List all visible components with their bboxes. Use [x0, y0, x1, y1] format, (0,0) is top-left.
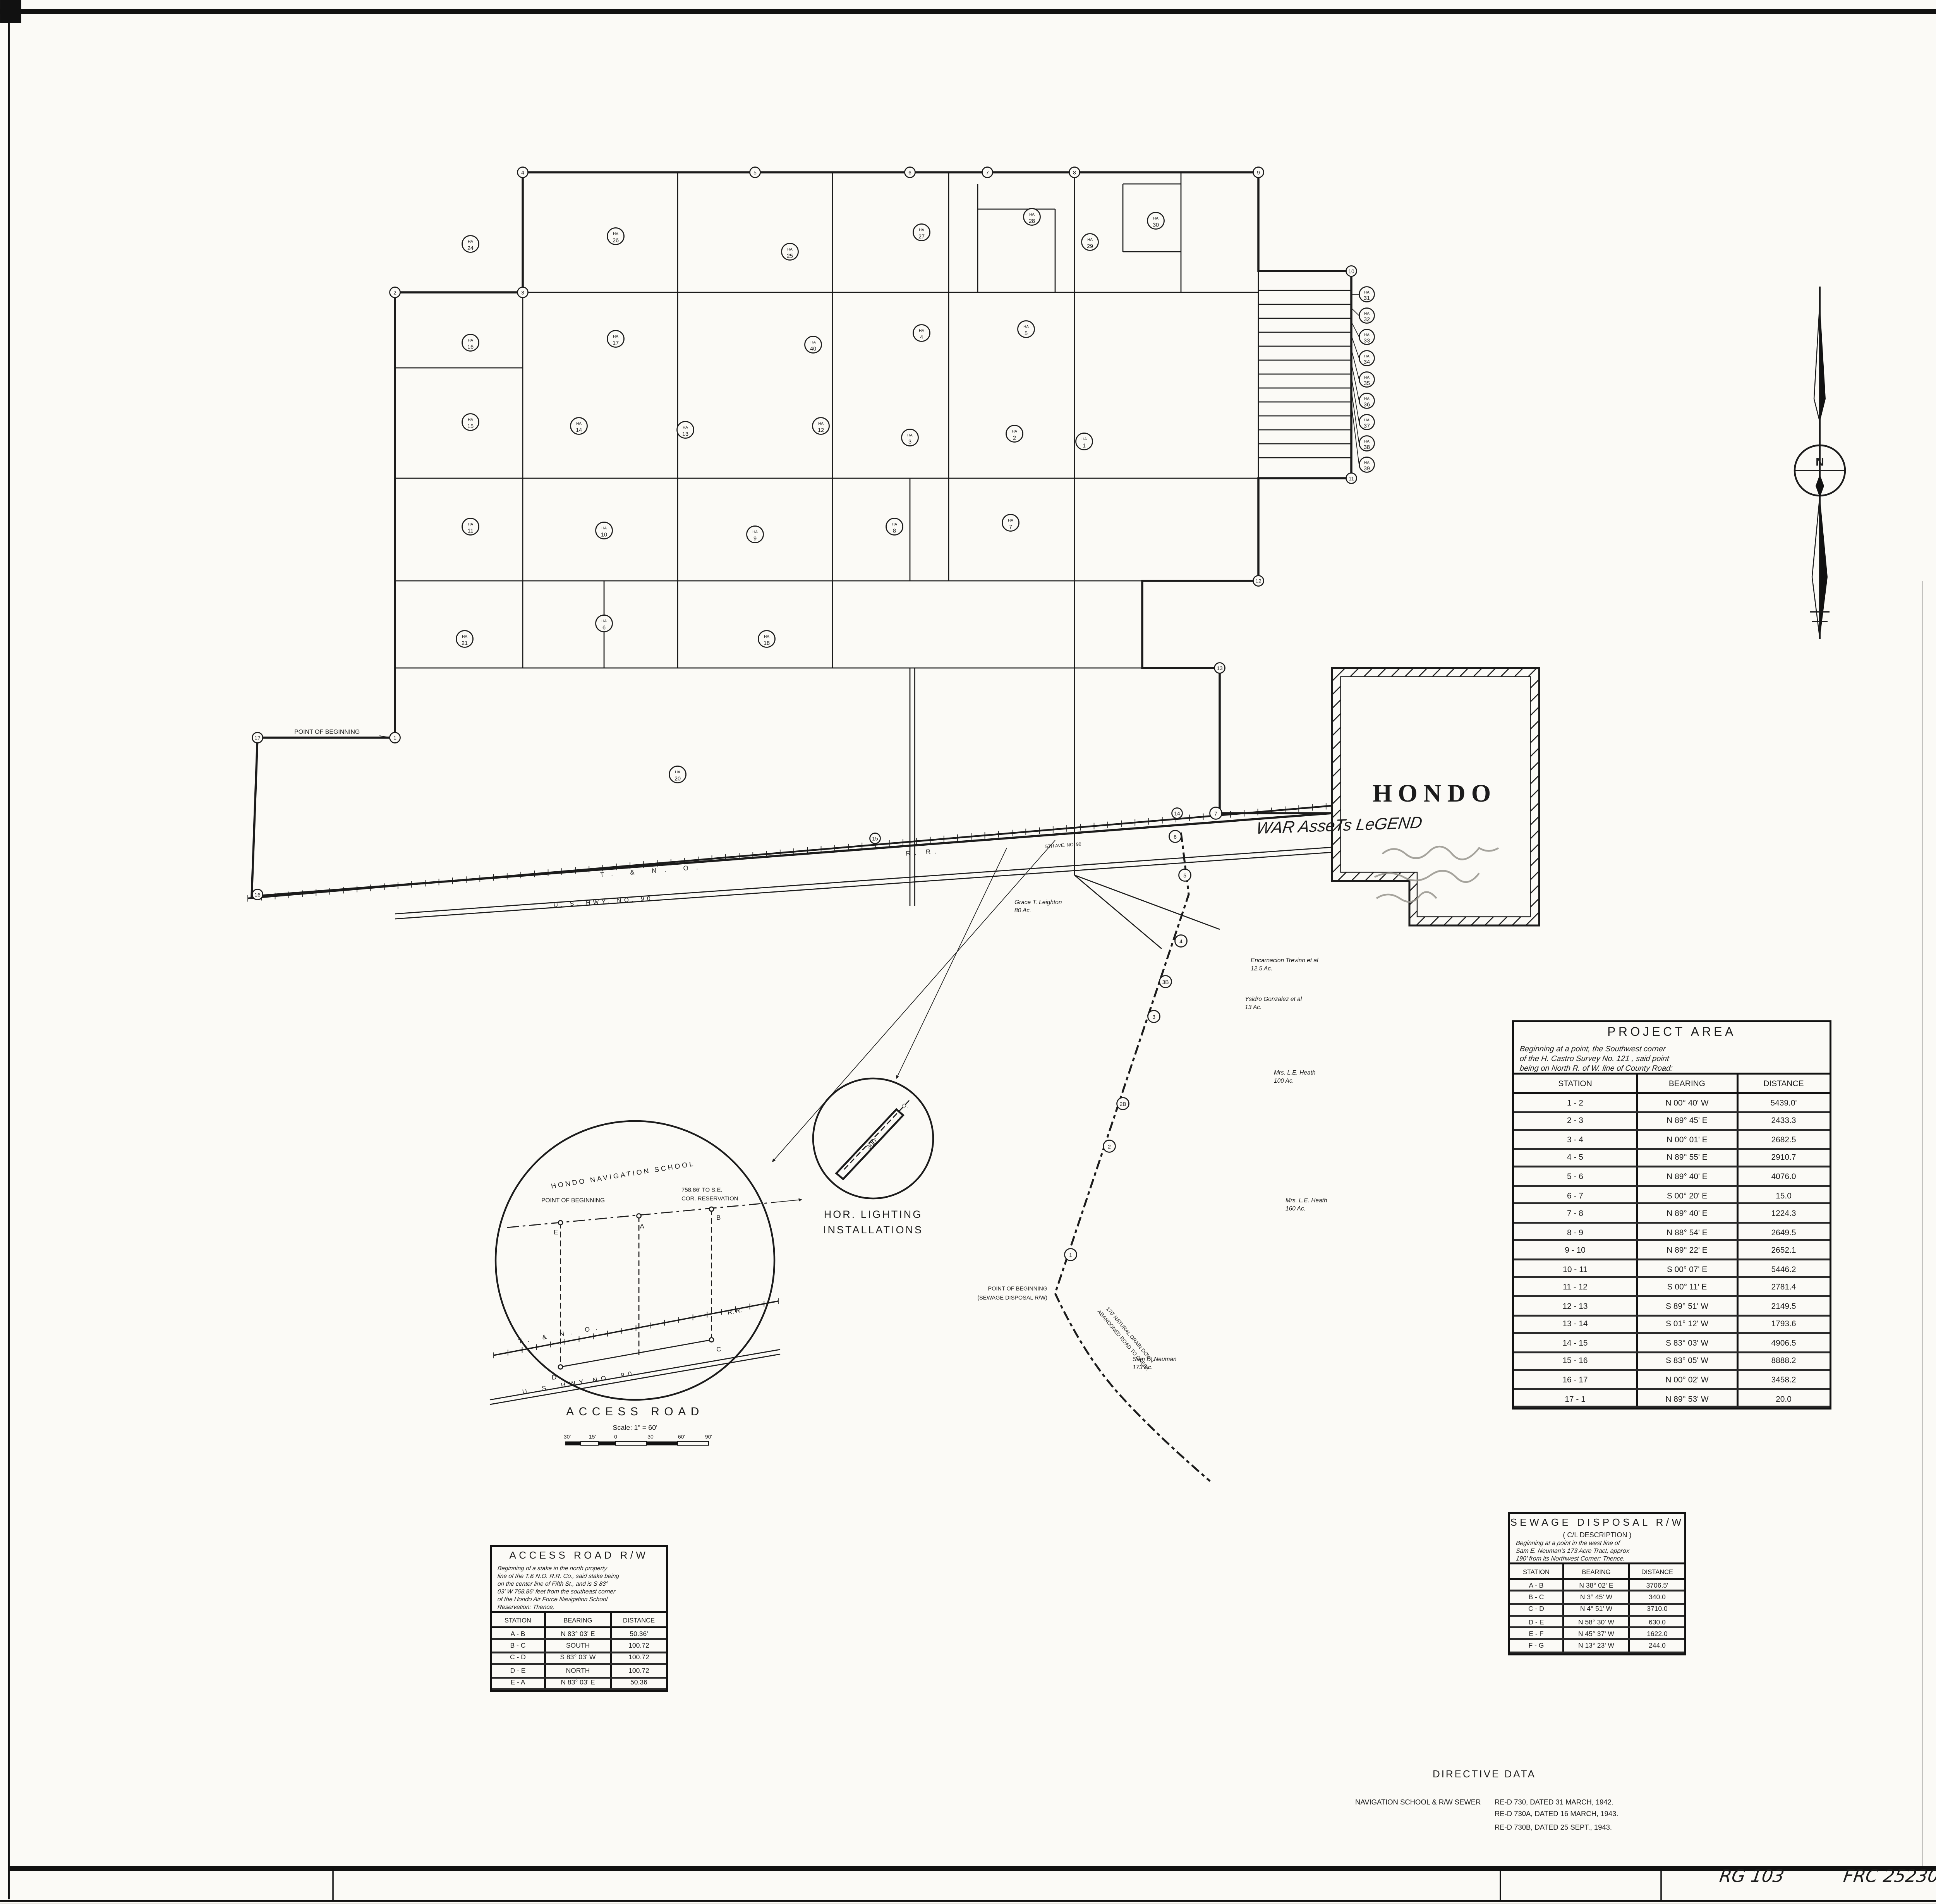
svg-text:HA: HA: [675, 770, 680, 774]
svg-text:3: 3: [908, 439, 911, 445]
bearing-row: 9 - 10 N 89° 22' E 2652.1: [1514, 1242, 1830, 1260]
svg-text:HA: HA: [1364, 376, 1370, 380]
svg-text:2B: 2B: [1119, 1101, 1126, 1107]
svg-text:HA: HA: [683, 426, 688, 430]
svg-text:28: 28: [1029, 218, 1035, 224]
svg-text:HA: HA: [892, 522, 897, 527]
hondo-city-label: HONDO: [1373, 779, 1497, 807]
svg-text:15: 15: [467, 423, 474, 429]
svg-text:2: 2: [1108, 1143, 1111, 1150]
svg-text:HA: HA: [1029, 213, 1035, 217]
svg-text:9: 9: [753, 536, 757, 542]
directive-project: NAVIGATION SCHOOL & R/W SEWER: [1355, 1800, 1481, 1807]
svg-text:27: 27: [918, 233, 925, 240]
svg-text:6: 6: [908, 169, 911, 175]
svg-text:HA: HA: [1364, 312, 1370, 316]
svg-text:HA: HA: [1153, 216, 1159, 221]
svg-text:18: 18: [764, 640, 770, 646]
footer-frc: FRC 252307: [1842, 1870, 1936, 1889]
svg-text:HA: HA: [1364, 461, 1370, 465]
svg-text:HA: HA: [613, 335, 618, 339]
svg-text:ACCESS ROAD: ACCESS ROAD: [566, 1405, 704, 1418]
svg-text:HA: HA: [764, 635, 769, 639]
svg-text:15: 15: [872, 835, 878, 841]
sewage-cl-row: D - E N 58° 30' W 630.0: [1510, 1616, 1684, 1628]
svg-text:INSTALLATIONS: INSTALLATIONS: [823, 1224, 923, 1236]
svg-text:17: 17: [254, 735, 261, 741]
sewage-cl-row: E - F N 45° 37' W 1622.0: [1510, 1629, 1684, 1641]
bearing-row: 11 - 12 S 00° 11' E 2781.4: [1514, 1279, 1830, 1297]
svg-text:HA: HA: [1364, 354, 1370, 359]
bearing-row: 15 - 16 S 83° 05' W 8888.2: [1514, 1353, 1830, 1371]
svg-text:1: 1: [393, 735, 396, 741]
svg-text:5: 5: [1025, 330, 1028, 337]
access-road-table: ACCESS ROAD R/W Beginning of a stake in …: [490, 1545, 668, 1692]
bearing-row: 5 - 6 N 89° 40' E 4076.0: [1514, 1168, 1830, 1186]
svg-text:HA: HA: [919, 329, 924, 333]
svg-text:8: 8: [1073, 169, 1076, 175]
svg-text:HA: HA: [468, 338, 473, 343]
footer-rg: RG 103: [1718, 1870, 1785, 1889]
svg-text:13: 13: [1217, 665, 1223, 671]
svg-text:2: 2: [393, 289, 396, 295]
svg-text:3: 3: [521, 289, 524, 295]
svg-text:12: 12: [818, 427, 824, 433]
main-tract-map: HONDO POINT OF BEGINNING POINT OF BEGINN…: [248, 167, 1539, 1481]
svg-text:HA: HA: [468, 418, 473, 422]
svg-text:A: A: [640, 1222, 645, 1230]
svg-text:HA: HA: [1364, 333, 1370, 337]
sewage-cl-row: F - G N 13° 23' W 244.0: [1510, 1641, 1684, 1653]
svg-text:31: 31: [1364, 295, 1370, 301]
directive-item-1: RE-D 730A, DATED 16 MARCH, 1943.: [1495, 1813, 1618, 1820]
svg-text:3: 3: [1152, 1014, 1155, 1020]
bearing-row: 16 - 17 N 00° 02' W 3458.2: [1514, 1371, 1830, 1390]
svg-text:1: 1: [1083, 443, 1086, 449]
pob-left-label: POINT OF BEGINNING: [294, 729, 360, 735]
svg-text:30: 30: [647, 1434, 654, 1440]
bearing-row: 4 - 5 N 89° 55' E 2910.7: [1514, 1149, 1830, 1168]
owner-label: Mrs. L.E. Heath100 Ac.: [1274, 1070, 1316, 1084]
svg-text:HA: HA: [468, 240, 473, 244]
svg-text:90': 90': [705, 1434, 712, 1440]
svg-text:B: B: [716, 1214, 721, 1221]
svg-text:10: 10: [601, 532, 607, 538]
directive-title: DIRECTIVE DATA: [1433, 1772, 1536, 1782]
sewage-cl-row: B - C N 3° 45' W 340.0: [1510, 1592, 1684, 1604]
svg-text:O.: O.: [902, 1102, 908, 1109]
svg-text:HA: HA: [1364, 397, 1370, 401]
svg-text:HA: HA: [576, 422, 582, 426]
svg-text:10: 10: [1348, 268, 1354, 274]
svg-text:26: 26: [613, 237, 619, 244]
bearing-row: 3 - 4 N 00° 01' E 2682.5: [1514, 1131, 1830, 1149]
bearing-row: 7 - 8 N 89° 40' E 1224.3: [1514, 1205, 1830, 1223]
svg-text:HA: HA: [810, 340, 816, 345]
svg-text:14: 14: [576, 427, 582, 433]
bearing-row: 1 - 2 N 00° 40' W 5439.0': [1514, 1094, 1830, 1113]
owner-label: Encarnacion Trevino et al12.5 Ac.: [1251, 957, 1318, 972]
svg-text:16: 16: [254, 891, 261, 898]
svg-text:HA: HA: [468, 522, 473, 527]
svg-text:6: 6: [1174, 834, 1177, 840]
svg-text:HOR. LIGHTING: HOR. LIGHTING: [824, 1209, 922, 1220]
owner-labels: Encarnacion Trevino et al12.5 Ac.Ysidro …: [1014, 899, 1327, 1371]
svg-text:HA: HA: [1012, 429, 1017, 434]
bearing-row: 10 - 11 S 00° 07' E 5446.2: [1514, 1260, 1830, 1279]
access-cl-row: B - C SOUTH 100.72: [492, 1641, 666, 1653]
svg-text:7: 7: [1009, 524, 1012, 530]
svg-text:12: 12: [1255, 578, 1261, 584]
sewage-rw-line: [1055, 833, 1210, 1481]
svg-text:HA: HA: [919, 228, 924, 232]
svg-text:170' NATURAL DRAIN DOWN: 170' NATURAL DRAIN DOWN: [1105, 1306, 1155, 1363]
lighting-detail: 300' O. HOR. LIGHTING INSTALLATIONS: [813, 1078, 933, 1236]
svg-text:7: 7: [1214, 810, 1217, 817]
svg-text:E: E: [554, 1228, 558, 1236]
access-cl-row: D - E NORTH 100.72: [492, 1665, 666, 1678]
sewage-cl-table: SEWAGE DISPOSAL R/W ( C/L DESCRIPTION ) …: [1508, 1512, 1686, 1655]
svg-text:3B: 3B: [1162, 979, 1169, 985]
svg-text:HA: HA: [1087, 238, 1093, 242]
svg-text:15': 15': [589, 1434, 596, 1440]
compass-rose: N: [1795, 287, 1845, 639]
svg-text:HA: HA: [1364, 418, 1370, 422]
bearing-row: 13 - 14 S 01° 12' W 1793.6: [1514, 1316, 1830, 1334]
svg-text:14: 14: [1174, 810, 1180, 816]
svg-text:5: 5: [1183, 872, 1186, 879]
owner-label: Mrs. L.E. Heath160 Ac.: [1286, 1197, 1327, 1212]
svg-text:HA: HA: [1081, 437, 1087, 441]
svg-text:32: 32: [1364, 316, 1370, 323]
north-icon: N: [1816, 455, 1824, 468]
svg-text:HA: HA: [601, 526, 607, 531]
svg-text:36: 36: [1364, 402, 1370, 408]
sewage-cl-row: A - B N 38° 02' E 3706.5': [1510, 1580, 1684, 1592]
svg-text:13: 13: [682, 431, 688, 437]
svg-text:0: 0: [614, 1434, 617, 1440]
svg-text:2: 2: [1013, 435, 1016, 441]
project-area-bearing-table: PROJECT AREA Beginning at a point, the S…: [1512, 1020, 1831, 1410]
directive-item-0: RE-D 730, DATED 31 MARCH, 1942.: [1495, 1800, 1613, 1807]
svg-text:11: 11: [1349, 475, 1354, 481]
svg-text:Scale: 1" = 60': Scale: 1" = 60': [613, 1423, 657, 1431]
bearing-row: 17 - 1 N 89° 53' W 20.0: [1514, 1390, 1830, 1408]
svg-text:1: 1: [1069, 1252, 1072, 1258]
svg-text:4: 4: [521, 169, 524, 175]
access-road-detail: HONDO NAVIGATION SCHOOL POINT OF BEGINNI…: [490, 1121, 802, 1445]
svg-text:25: 25: [787, 253, 793, 259]
svg-text:HA: HA: [462, 635, 467, 639]
highway-label: U. S. HWY. NO. 90: [553, 895, 654, 909]
directive-item-2: RE-D 730B, DATED 25 SEPT., 1943.: [1495, 1826, 1612, 1833]
svg-text:39: 39: [1364, 465, 1370, 472]
svg-text:4: 4: [1179, 938, 1183, 944]
svg-text:HA: HA: [1008, 518, 1013, 523]
svg-text:HA: HA: [787, 247, 793, 252]
bearing-row: 8 - 9 N 88° 54' E 2649.5: [1514, 1223, 1830, 1242]
svg-text:33: 33: [1364, 338, 1370, 344]
svg-text:D: D: [552, 1373, 556, 1381]
svg-text:HA: HA: [1364, 440, 1370, 444]
strip-tract-markers: HA31HA32HA33HA34HA35HA36HA37HA38HA39: [1351, 287, 1374, 472]
svg-text:U. S. HWY NO. 90: U. S. HWY NO. 90: [522, 1370, 636, 1396]
svg-text:11: 11: [468, 528, 474, 534]
svg-text:17: 17: [613, 340, 619, 346]
svg-text:4: 4: [920, 334, 923, 340]
bearing-row: 6 - 7 S 00° 20' E 15.0: [1514, 1186, 1830, 1205]
svg-text:POINT OF BEGINNING: POINT OF BEGINNING: [541, 1197, 605, 1204]
svg-text:16: 16: [467, 344, 474, 350]
svg-text:HA: HA: [818, 422, 824, 426]
railroad-label-2: R. R.: [906, 847, 941, 857]
bearing-row: 12 - 13 S 89° 51' W 2149.5: [1514, 1297, 1830, 1316]
access-cl-row: A - B N 83° 03' E 50.36': [492, 1628, 666, 1641]
svg-text:C: C: [716, 1346, 721, 1353]
pob-sewage-label: POINT OF BEGINNING (SEWAGE DISPOSAL R/W): [977, 1286, 1047, 1301]
svg-text:HA: HA: [752, 530, 758, 534]
svg-text:5: 5: [753, 169, 757, 175]
bearing-row: 14 - 15 S 83° 03' W 4906.5: [1514, 1334, 1830, 1353]
sewage-cl-row: C - D N 4° 51' W 3710.0: [1510, 1604, 1684, 1616]
svg-text:40: 40: [810, 346, 816, 352]
access-cl-row: E - A N 83° 03' E 50.36: [492, 1678, 666, 1690]
drawing-sheet: HONDO POINT OF BEGINNING POINT OF BEGINN…: [0, 0, 1936, 1904]
svg-text:HA: HA: [1364, 290, 1370, 295]
access-cl-row: C - D S 83° 03' W 100.72: [492, 1653, 666, 1665]
svg-text:R. R.: R. R.: [727, 1307, 743, 1316]
svg-text:300': 300': [865, 1137, 880, 1151]
svg-text:34: 34: [1364, 359, 1370, 365]
svg-text:HA: HA: [613, 232, 618, 236]
svg-text:29: 29: [1087, 243, 1093, 249]
svg-text:7: 7: [986, 169, 989, 175]
svg-text:(SEWAGE DISPOSAL R/W): (SEWAGE DISPOSAL R/W): [977, 1295, 1047, 1301]
svg-text:30: 30: [1153, 222, 1159, 228]
svg-text:HA: HA: [601, 619, 607, 623]
tract-markers: HA24HA26HA25HA27HA28HA29HA30HA16HA17HA40…: [457, 208, 1164, 783]
svg-text:21: 21: [462, 640, 468, 646]
svg-text:38: 38: [1364, 444, 1370, 450]
svg-text:COR. RESERVATION: COR. RESERVATION: [681, 1195, 738, 1202]
svg-text:6: 6: [602, 625, 606, 631]
svg-text:HA: HA: [1023, 325, 1029, 329]
svg-text:9: 9: [1257, 169, 1260, 175]
access-scale-bar: 30'15' 030 60'90': [564, 1434, 712, 1446]
station-markers: 1234567891011121314151617: [252, 167, 1357, 900]
svg-text:20: 20: [675, 776, 681, 782]
svg-text:30': 30': [564, 1434, 571, 1440]
svg-text:37: 37: [1364, 423, 1370, 429]
svg-text:60': 60': [678, 1434, 685, 1440]
svg-text:35: 35: [1364, 380, 1370, 386]
svg-text:HONDO NAVIGATION SCHOOL: HONDO NAVIGATION SCHOOL: [551, 1160, 696, 1190]
svg-text:24: 24: [467, 245, 474, 251]
svg-text:POINT OF BEGINNING: POINT OF BEGINNING: [988, 1286, 1047, 1292]
detail-railroad-ticks: [494, 1298, 778, 1358]
svg-text:HA: HA: [907, 433, 913, 438]
svg-text:8: 8: [893, 528, 896, 534]
owner-label: Grace T. Leighton80 Ac.: [1014, 899, 1062, 914]
owner-label: Ysidro Gonzalez et al13 Ac.: [1245, 996, 1302, 1011]
bearing-row: 2 - 3 N 89° 45' E 2433.3: [1514, 1113, 1830, 1131]
svg-text:758.86' TO S.E.: 758.86' TO S.E.: [681, 1186, 723, 1193]
